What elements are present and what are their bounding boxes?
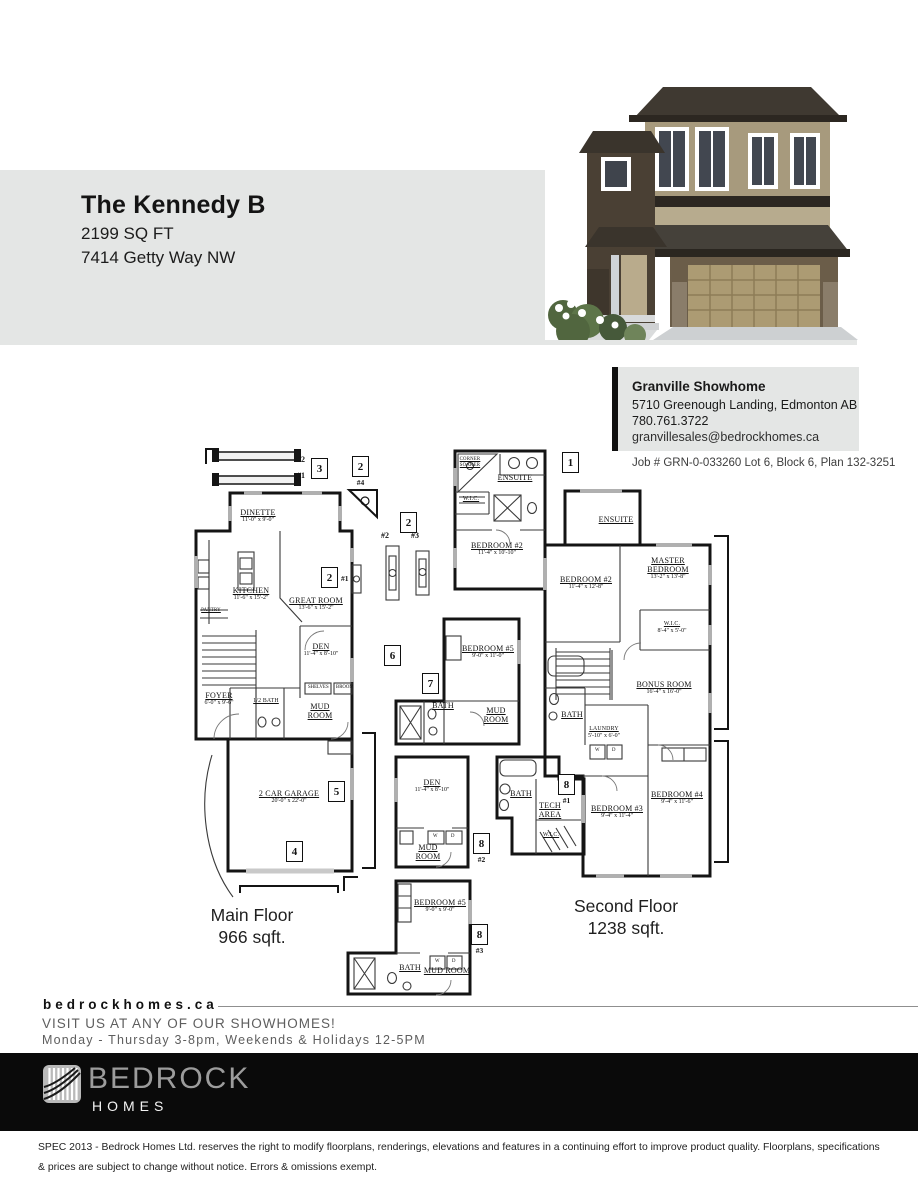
disclaimer-text: SPEC 2013 - Bedrock Homes Ltd. reserves … [38,1138,886,1179]
house-rendering-drawing [545,57,858,340]
logo-text-homes: HOMES [92,1098,168,1114]
option-box-8-3: 8#3 [471,924,488,955]
washer-label: W [435,959,440,964]
opt-label-ensuite: ENSUITE [498,473,533,482]
window-tag: #2 [297,455,305,464]
room-label-ensuite: ENSUITE [599,515,634,524]
flyer-page: The Kennedy B 2199 SQ FT 7414 Getty Way … [0,0,918,1188]
room-label-bedroom-4: BEDROOM #49'-4" x 11'-6" [651,790,703,806]
room-label-foyer: FOYER6'-0" x 9'-6" [204,691,233,707]
option-box-2-4: 2#4 [352,456,369,487]
room-label-bath-2f: BATH [561,710,583,719]
opt-label-wic-e: W.I.C. [543,832,559,839]
dryer-label: D [451,834,454,839]
option-box-2-1: 2#1 [321,567,349,588]
washer-label: W [595,748,600,753]
address-text: 7414 Getty Way NW [81,248,235,268]
room-label-garage: 2 CAR GARAGE20'-0" x 22'-0" [259,789,319,805]
hours-text: Monday - Thursday 3-8pm, Weekends & Holi… [42,1033,426,1047]
option-box-3: 3 [311,458,328,479]
room-label-kitchen: KITCHEN11'-6" x 15'-2" [233,586,270,602]
option-box-1: 1 [562,452,579,473]
opt-label-bedroom-2: BEDROOM #211'-4" x 10'-10" [471,541,523,557]
bedrock-logo-icon [42,1064,82,1109]
room-label-half-bath: 1/2 BATH [253,698,279,705]
showhome-phone: 780.761.3722 [632,414,708,428]
footer-rule [218,1006,918,1007]
opt-label-corner-soaker: CORNER SOAKER [457,457,483,468]
main-floor-caption: Main Floor [211,905,294,926]
floor-plans-drawing [0,440,918,1015]
website-text: bedrockhomes.ca [43,997,218,1012]
window-tag: #2 [381,531,389,540]
logo-text-bedrock: BEDROCK [88,1062,250,1096]
room-label-bedroom-3: BEDROOM #39'-4" x 11'-4" [591,804,643,820]
room-label-mud-room: MUD ROOM [302,702,338,720]
opt-label-bath-f: BATH [399,963,421,972]
room-label-bedroom-2: BEDROOM #211'-4" x 12'-8" [560,575,612,591]
room-label-great-room: GREAT ROOM13'-6" x 15'-2" [289,596,343,612]
showhome-address: 5710 Greenough Landing, Edmonton AB [632,398,857,412]
option-box-7: 7 [422,673,439,694]
opt-label-mud-room-f: MUD ROOM [424,966,470,975]
option-box-4: 4 [286,841,303,862]
opt-label-bath-c: BATH [432,701,454,710]
room-label-wic: W.I.C.8'-4" x 5'-0" [657,621,686,635]
second-floor-caption: Second Floor [574,896,678,917]
shelves-label: SHELVES [308,685,329,690]
option-box-8-2: 8#2 [473,833,490,864]
washer-label: W [433,834,438,839]
opt-label-mud-room-d: MUD ROOM [411,843,445,861]
room-label-den: DEN11'-4" x 8'-10" [304,642,339,658]
room-label-laundry: LAUNDRY5'-10" x 6'-0" [588,726,620,740]
window-tag: #1 [297,471,305,480]
second-floor-area: 1238 sqft. [588,918,665,939]
room-label-bonus-room: BONUS ROOM16'-4" x 16'-0" [636,680,691,696]
visit-text: VISIT US AT ANY OF OUR SHOWHOMES! [42,1016,336,1031]
opt-label-mud-room-c: MUD ROOM [479,706,513,724]
broom-label: BROOM [336,685,354,690]
option-box-8-1: 8#1 [558,774,575,805]
main-floor-area: 966 sqft. [218,927,285,948]
option-box-5: 5 [328,781,345,802]
option-box-2b: 2 [400,512,417,533]
opt-label-bedroom-5: BEDROOM #59'-0" x 11'-0" [462,644,514,660]
showhome-name: Granville Showhome [632,379,766,394]
opt-label-bedroom-5b: BEDROOM #59'-0" x 9'-0" [414,898,466,914]
dryer-label: D [612,748,615,753]
room-label-master-bedroom: MASTER BEDROOM13'-2" x 13'-8" [636,556,700,582]
opt-label-den: DEN11'-4" x 8'-10" [415,778,450,794]
opt-label-bath-e: BATH [510,789,532,798]
option-box-6: 6 [384,645,401,666]
room-label-dinette: DINETTE11'-0" x 9'-0" [240,508,275,524]
opt-label-wic-a: W.I.C. [463,496,479,503]
room-label-pantry: PANTRY [201,608,221,614]
house-rendering [545,57,858,340]
page-title: The Kennedy B [81,191,266,220]
window-tag: #3 [411,531,419,540]
dryer-label: D [452,959,455,964]
sqft-text: 2199 SQ FT [81,224,174,244]
